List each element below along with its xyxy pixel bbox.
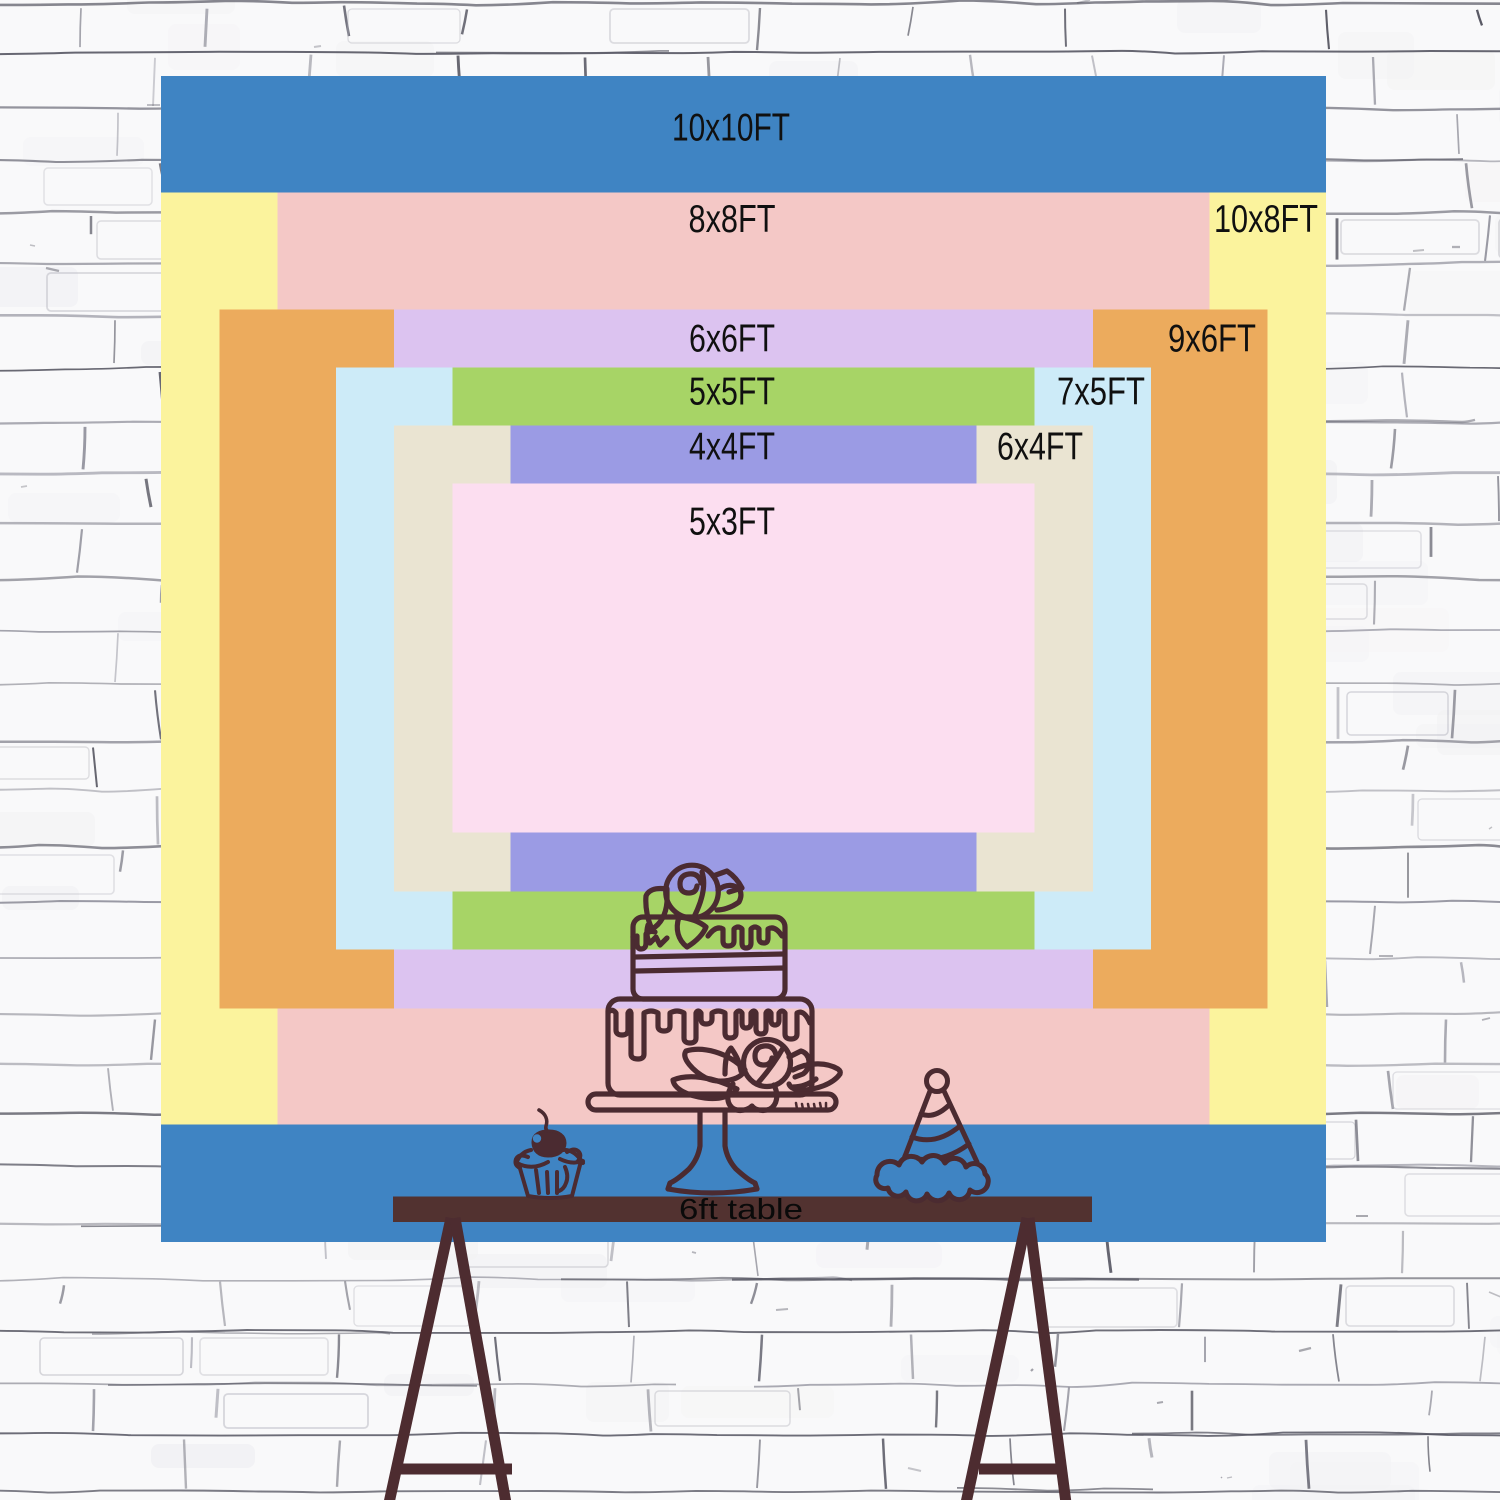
svg-text:6ft table: 6ft table — [679, 1194, 803, 1226]
svg-text:6x4FT: 6x4FT — [997, 426, 1083, 469]
svg-text:8x8FT: 8x8FT — [689, 198, 776, 241]
svg-text:10x8FT: 10x8FT — [1214, 198, 1318, 241]
svg-text:9x6FT: 9x6FT — [1168, 318, 1256, 361]
svg-text:5x3FT: 5x3FT — [689, 501, 775, 544]
svg-text:4x4FT: 4x4FT — [689, 426, 775, 469]
svg-text:6x6FT: 6x6FT — [689, 318, 775, 361]
svg-text:7x5FT: 7x5FT — [1057, 371, 1145, 414]
svg-text:10x10FT: 10x10FT — [672, 107, 790, 150]
svg-text:5x5FT: 5x5FT — [689, 371, 775, 414]
